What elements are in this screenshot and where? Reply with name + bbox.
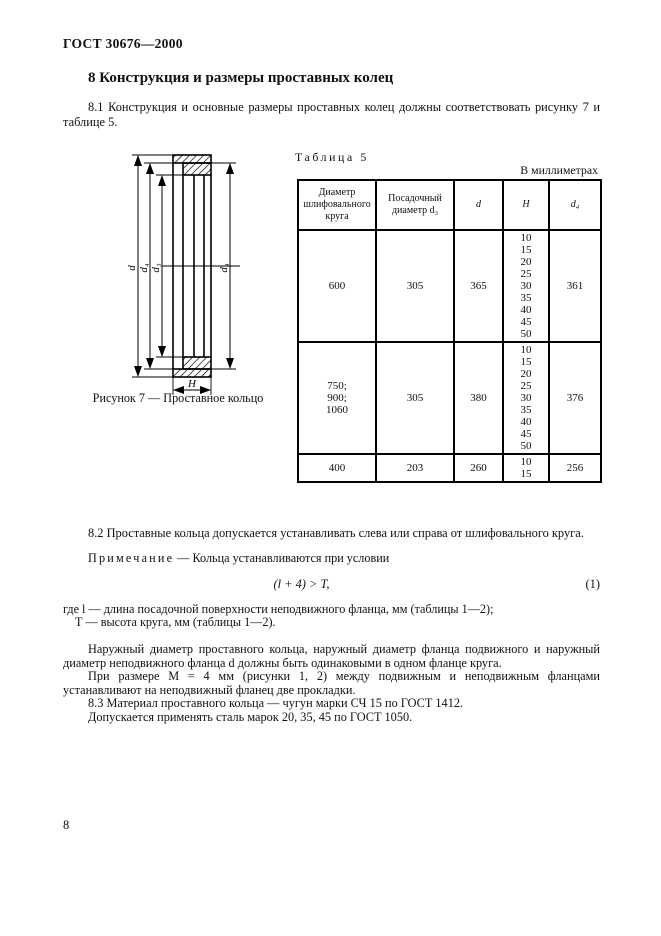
cell-H: 10 15 20 25 30 35 40 45 50	[503, 230, 549, 342]
cell-d4: 256	[549, 454, 601, 482]
col-header-seat-diameter: Посадочный диаметр d₃	[376, 180, 454, 230]
dim-label-d: d	[126, 265, 138, 271]
cell-d: 365	[454, 230, 503, 342]
note-label: Примечание	[88, 551, 174, 565]
table-header-row: Диаметр шлифовального круга Посадочный д…	[298, 180, 601, 230]
cell-seat-diameter: 305	[376, 230, 454, 342]
cell-seat-diameter: 305	[376, 342, 454, 454]
where-T-definition: Т — высота круга, мм (таблицы 1—2).	[63, 615, 600, 630]
cell-H: 10 15	[503, 454, 549, 482]
figure-7-drawing: d d₄ d₃ d₄ H	[78, 146, 278, 398]
paragraph-8-1: 8.1 Конструкция и основные размеры прост…	[63, 100, 600, 130]
formula-row: (l + 4) > T, (1)	[63, 577, 600, 592]
cell-d4: 376	[549, 342, 601, 454]
col-header-H: H	[503, 180, 549, 230]
formula: (l + 4) > T,	[33, 577, 570, 592]
cell-d4: 361	[549, 230, 601, 342]
paragraph-8-2: 8.2 Проставные кольца допускается устана…	[63, 526, 600, 541]
col-header-d4: d₄	[549, 180, 601, 230]
dim-label-H: H	[187, 378, 197, 390]
table-row: 750; 900; 1060 305 380 10 15 20 25 30 35…	[298, 342, 601, 454]
section-heading: 8 Конструкция и размеры проставных колец	[88, 70, 393, 87]
cell-H: 10 15 20 25 30 35 40 45 50	[503, 342, 549, 454]
cell-wheel-diameter: 750; 900; 1060	[298, 342, 376, 454]
table-row: 400 203 260 10 15 256	[298, 454, 601, 482]
figure-7-caption: Рисунок 7 — Проставное кольцо	[68, 391, 288, 406]
dim-label-d4-right: d₄	[218, 263, 230, 273]
dim-label-d3: d₃	[150, 263, 162, 273]
lower-paragraphs: Наружный диаметр проставного кольца, нар…	[63, 643, 600, 725]
note-text: — Кольца устанавливаются при условии	[174, 551, 389, 565]
paragraph-m4: При размере М = 4 мм (рисунки 1, 2) межд…	[63, 670, 600, 697]
note-line: Примечание — Кольца устанавливаются при …	[63, 551, 600, 566]
cell-wheel-diameter: 600	[298, 230, 376, 342]
cell-wheel-diameter: 400	[298, 454, 376, 482]
table-5: Диаметр шлифовального круга Посадочный д…	[297, 179, 602, 483]
paragraph-outer-diameters: Наружный диаметр проставного кольца, нар…	[63, 643, 600, 670]
table-row: 600 305 365 10 15 20 25 30 35 40 45 50 3…	[298, 230, 601, 342]
formula-number: (1)	[586, 577, 600, 592]
col-header-wheel-diameter: Диаметр шлифовального круга	[298, 180, 376, 230]
standard-number: ГОСТ 30676—2000	[63, 36, 183, 52]
cell-d: 380	[454, 342, 503, 454]
dim-label-d4-left: d₄	[138, 263, 150, 273]
document-page: ГОСТ 30676—2000 8 Конструкция и размеры …	[0, 0, 661, 936]
paragraph-8-3: 8.3 Материал проставного кольца — чугун …	[63, 697, 600, 711]
cell-seat-diameter: 203	[376, 454, 454, 482]
col-header-d: d	[454, 180, 503, 230]
cell-d: 260	[454, 454, 503, 482]
paragraph-steel: Допускается применять сталь марок 20, 35…	[63, 711, 600, 725]
page-number: 8	[63, 818, 69, 833]
table-units-note: В миллиметрах	[295, 163, 598, 178]
